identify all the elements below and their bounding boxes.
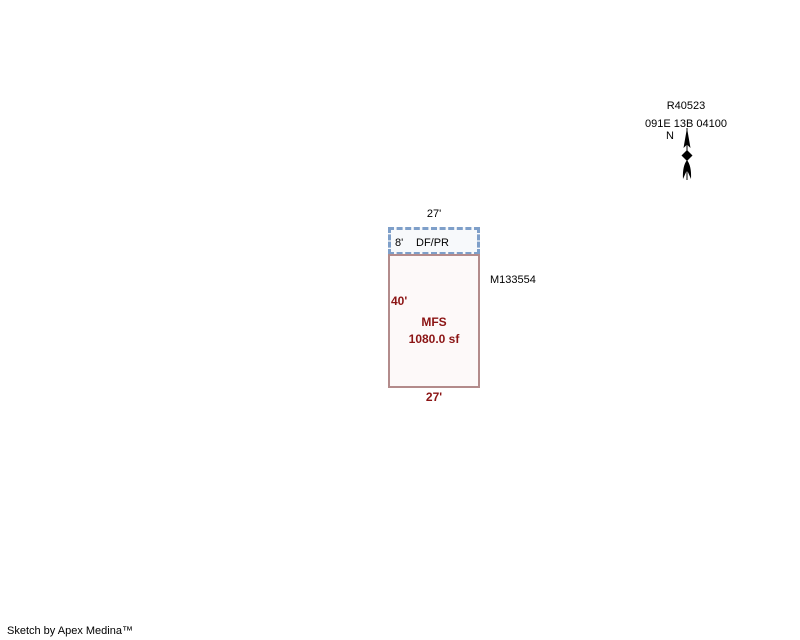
north-label: N [666, 130, 674, 142]
property-sketch-canvas: R40523 091E 13B 04100 N 27' 8' DF/PR 40'… [0, 0, 800, 640]
parcel-account-id: R40523 [616, 97, 756, 115]
building-height-dimension: 40' [391, 295, 407, 307]
building-area-value: 1080.0 sf [388, 332, 480, 346]
building-area-code: MFS [388, 315, 480, 329]
reference-marker: M133554 [490, 274, 536, 286]
porch-width-dimension: 27' [388, 208, 480, 220]
credit-line: Sketch by Apex Medina™ [7, 625, 133, 637]
porch-depth-dimension: 8' [395, 237, 403, 249]
north-arrow-icon [679, 127, 695, 181]
porch-area-code: DF/PR [416, 237, 449, 249]
building-width-dimension: 27' [388, 390, 480, 404]
